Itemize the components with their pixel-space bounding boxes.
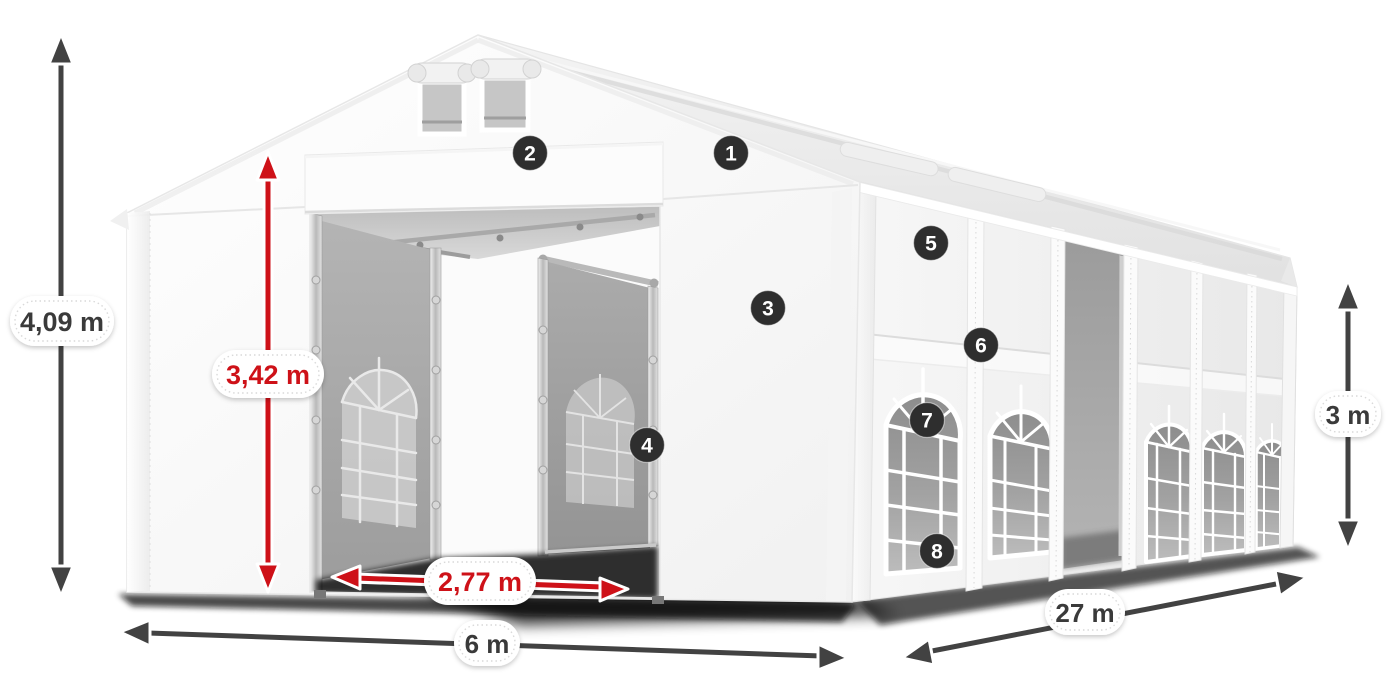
marker-6-number: 6 [975,335,987,358]
marker-7: 7 [910,403,945,438]
front-width-label: 6 m [465,629,510,659]
front-left-corner-post [127,211,150,592]
marker-5: 5 [914,226,949,261]
total-height-label: 4,09 m [20,307,104,337]
dimension-pill: 27 m [1045,589,1125,635]
left-eave-overhang [110,209,129,230]
door-foot [314,590,326,598]
marker-8: 8 [920,534,955,569]
dimension-pill: 2,77 m [424,557,536,605]
door-foot [652,596,664,604]
side-window-3 [1146,406,1192,562]
entrance-height-label: 3,42 m [226,360,310,390]
marker-1: 1 [714,136,749,171]
dimension-front-width: 6 m [120,620,848,670]
marker-4-number: 4 [641,435,653,458]
marker-5-number: 5 [925,233,937,256]
gable-vent-left [408,63,476,134]
tent-dimension-diagram: 4,09 m 3,42 m 2,77 m [0,0,1400,700]
marker-3: 3 [751,291,786,326]
dimension-pill: 4,09 m [10,296,114,346]
entrance-width-label: 2,77 m [438,567,522,597]
dimension-pill: 3,42 m [212,350,324,398]
entrance-header-beam [305,142,663,214]
marker-7-number: 7 [921,410,933,433]
marker-2-number: 2 [524,143,536,166]
side-height-label: 3 m [1326,400,1371,430]
marker-6: 6 [964,328,999,363]
entrance-interior [305,200,665,605]
marker-3-number: 3 [762,298,774,321]
side-length-label: 27 m [1055,598,1114,628]
side-entrance-opening [1061,231,1126,569]
marker-1-number: 1 [725,143,737,166]
gable-vent-right [471,59,541,130]
dimension-side-height: 3 m [1315,280,1381,550]
entrance-door-left [318,220,441,580]
marker-8-number: 8 [931,541,943,564]
diagram-canvas: 4,09 m 3,42 m 2,77 m [0,0,1400,700]
entrance-left-post [310,213,322,592]
dimension-total-height: 4,09 m [10,34,114,596]
entrance-door-right [538,255,659,557]
dimension-pill: 6 m [454,620,520,666]
dimension-pill: 3 m [1315,391,1381,437]
marker-4: 4 [630,428,665,463]
marker-2: 2 [513,136,548,171]
